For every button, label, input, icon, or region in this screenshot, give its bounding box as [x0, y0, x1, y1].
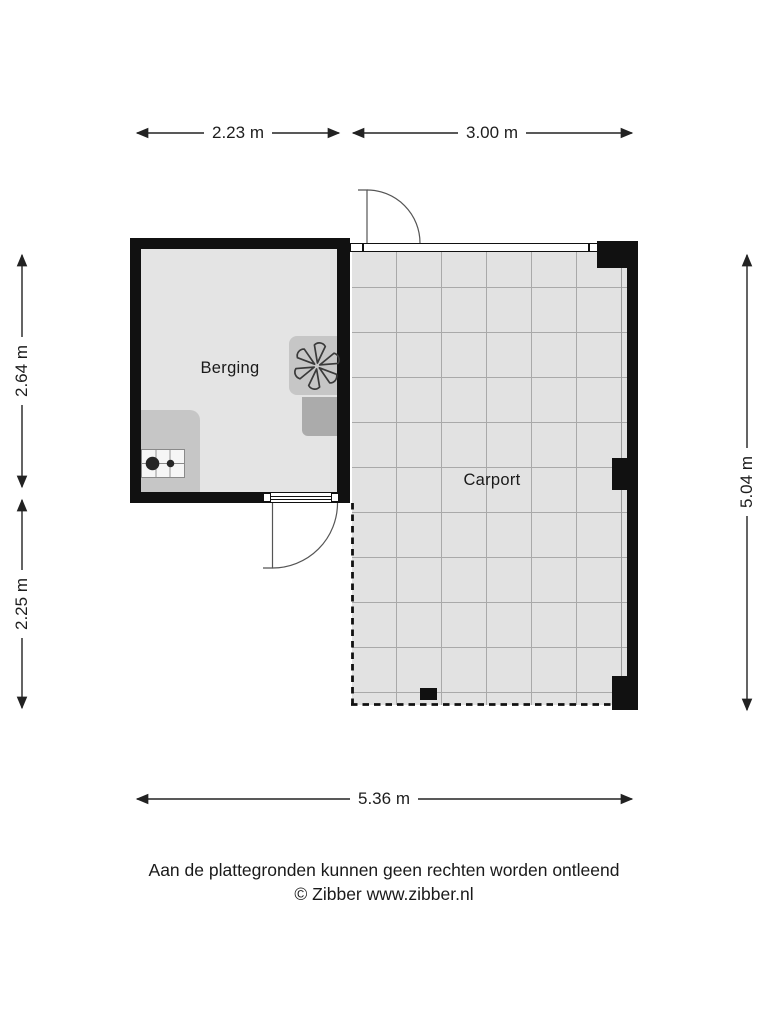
dimension-label-top-left: 2.23 m: [204, 123, 272, 143]
door-jamb-right: [331, 493, 339, 502]
door-swing-top: [358, 190, 420, 243]
carport-top-beam: [350, 243, 598, 252]
room-label-berging: Berging: [160, 359, 300, 378]
carport-post-marker: [420, 688, 437, 700]
dimension-label-left-lower: 2.25 m: [12, 570, 32, 638]
dimension-label-left-upper: 2.64 m: [12, 337, 32, 405]
footer-disclaimer: Aan de plattegronden kunnen geen rechten…: [0, 860, 768, 881]
footer-copyright: © Zibber www.zibber.nl: [0, 884, 768, 905]
wall-berging-carport: [337, 238, 350, 503]
installation-unit-lower: [302, 397, 337, 436]
dimension-label-bottom: 5.36 m: [350, 789, 418, 809]
door-jamb-left: [263, 493, 271, 502]
berging-door-sill: [263, 492, 340, 503]
wall-bottom-left-segment: [130, 492, 264, 503]
column-top-right: [597, 241, 638, 268]
kitchen-counter: [141, 410, 200, 492]
dimension-label-top-right: 3.00 m: [458, 123, 526, 143]
beam-divider-left: [362, 243, 364, 252]
door-swing-bottom: [263, 503, 338, 568]
room-label-carport: Carport: [422, 471, 562, 490]
floor-plan-page: Berging Carport 2.23 m 3.00 m 2.64 m 2.2…: [0, 0, 768, 1024]
dimension-label-right: 5.04 m: [737, 448, 757, 516]
wall-left: [130, 238, 141, 503]
wall-top: [130, 238, 350, 249]
column-mid-right: [612, 458, 638, 490]
column-bottom-right: [612, 676, 638, 710]
beam-divider-right: [588, 243, 590, 252]
